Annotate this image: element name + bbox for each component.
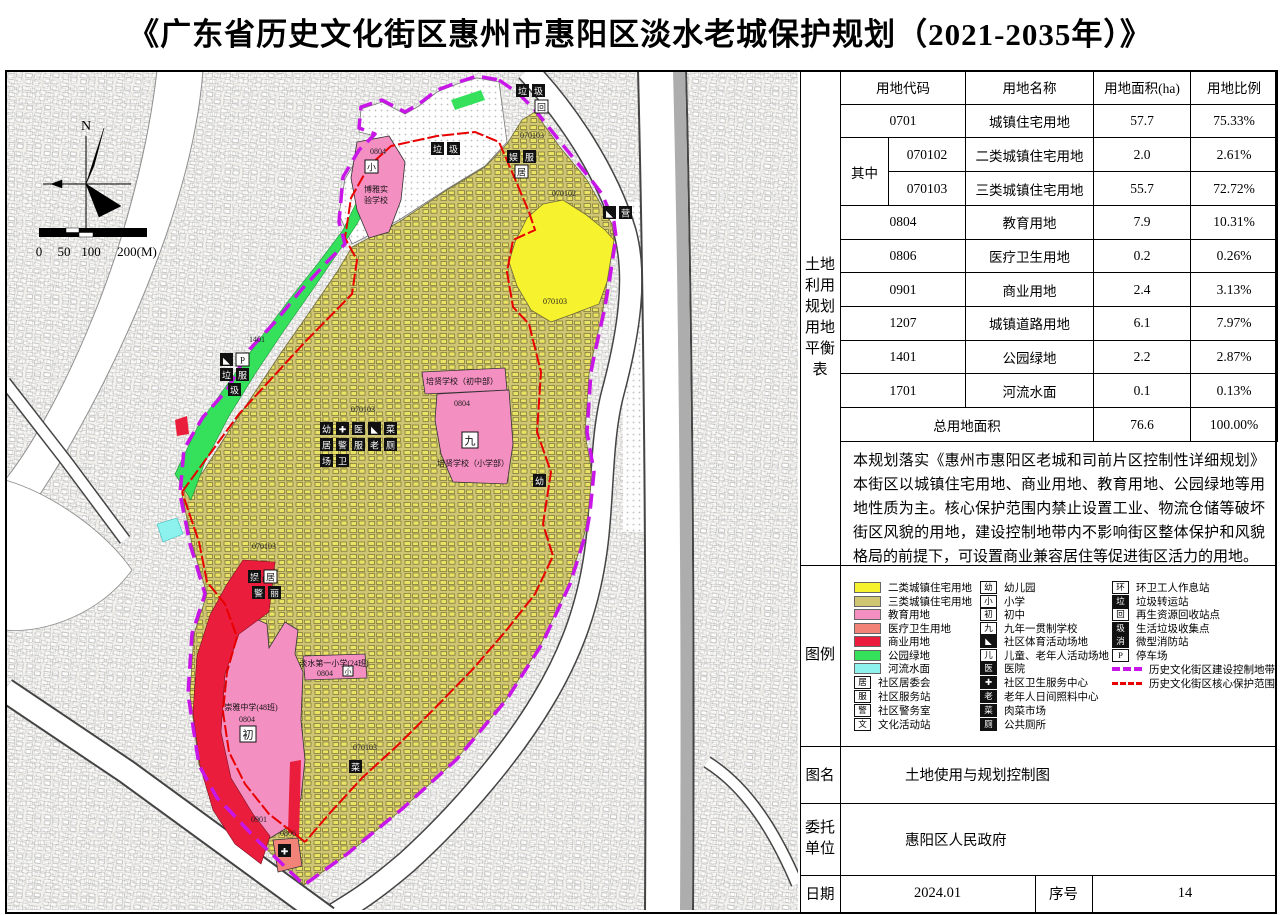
cell-code: 0806 [841, 239, 966, 273]
zone-code-label: 0804 [317, 669, 333, 678]
activity-ground-icon: 儿 [980, 649, 997, 662]
svg-text:圾: 圾 [230, 385, 239, 396]
service-station-icon: 服 [236, 368, 249, 381]
cell-pct: 75.33% [1191, 104, 1278, 138]
color-swatch [854, 636, 881, 647]
cell-area: 57.7 [1094, 104, 1191, 138]
committee-icon: 居 [320, 438, 333, 451]
table-row: 其中 070102 二类城镇住宅用地 2.0 2.61% [841, 138, 1278, 172]
svg-text:丽: 丽 [270, 589, 279, 599]
waste-collection-icon: 圾 [532, 84, 545, 97]
legend-item: 老老年人日间照料中心 [980, 690, 1099, 702]
svg-text:服: 服 [354, 441, 363, 451]
junior-school-icon: 初 [240, 726, 256, 742]
cell-pct: 7.97% [1191, 307, 1278, 341]
legend-item: ◣社区体育活动场地 [980, 635, 1088, 647]
client-label: 委托单位 [801, 803, 839, 875]
svg-text:垃: 垃 [518, 86, 527, 97]
legend-item: 圾生活垃圾收集点 [1112, 622, 1210, 634]
legend-label: 微型消防站 [1136, 634, 1189, 649]
legend-label: 幼儿园 [1004, 580, 1036, 595]
legend-label: 医院 [1004, 661, 1025, 676]
elder-care-icon: 老 [368, 438, 381, 451]
zone-code-label: 070102 [552, 189, 576, 198]
table-row: 0806 医疗卫生用地 0.2 0.26% [841, 239, 1278, 273]
culture-station-icon: 文 [854, 718, 871, 731]
color-swatch [854, 623, 881, 634]
legend-item: P停车场 [1112, 649, 1168, 661]
elder-care-icon: 老 [980, 690, 997, 703]
legend-item: ✚社区卫生服务中心 [980, 676, 1088, 688]
svg-text:居: 居 [266, 573, 275, 583]
kindergarten-icon: 幼 [533, 474, 546, 487]
cell-name: 公园绿地 [966, 340, 1094, 374]
legend-label: 停车场 [1136, 648, 1168, 663]
table-row: 0804 教育用地 7.9 10.31% [841, 205, 1278, 239]
svg-text:幼: 幼 [322, 424, 331, 435]
cell-code: 1207 [841, 307, 966, 341]
legend-label: 环卫工人作息站 [1136, 580, 1210, 595]
svg-text:卫: 卫 [338, 457, 347, 467]
legend-item: 医医院 [980, 662, 1025, 674]
legend-label: 文化活动站 [878, 717, 931, 732]
market-icon: 菜 [980, 704, 997, 717]
cell-name: 城镇道路用地 [966, 307, 1094, 341]
recycling-icon: 回 [535, 100, 548, 113]
zone-commercial-east [288, 760, 301, 838]
parking-icon: P [1112, 649, 1129, 662]
zone-code-label: 0806 [280, 829, 296, 838]
legend-item: 历史文化街区核心保护范围 [1112, 677, 1275, 689]
legend-item: 环环卫工人作息站 [1112, 581, 1210, 593]
kindergarten-icon: 幼 [320, 422, 333, 435]
date-value: 2024.01 [841, 875, 1034, 912]
waste-transfer-icon: 垃 [431, 142, 444, 155]
svg-text:场: 场 [322, 457, 331, 467]
waste-transfer-icon: 垃 [516, 84, 529, 97]
table-row: 0701 城镇住宅用地 57.7 75.33% [841, 104, 1278, 138]
col-header: 用地面积(ha) [1094, 71, 1191, 105]
svg-text:回: 回 [537, 103, 546, 113]
legend-label: 老年人日间照料中心 [1004, 689, 1099, 704]
nine-year-school-icon: 九 [980, 622, 997, 635]
cell-name: 商业用地 [966, 273, 1094, 307]
svg-text:营: 营 [621, 208, 630, 219]
zone-code-label: 070103 [520, 131, 544, 140]
svg-text:居: 居 [517, 168, 526, 178]
fire-station-icon: 消 [1112, 635, 1129, 648]
legend-label: 社区卫生服务中心 [1004, 675, 1088, 690]
cell-name: 城镇住宅用地 [966, 104, 1094, 138]
police-room-icon: 警 [854, 704, 871, 717]
health-center-icon: ✚ [980, 676, 997, 689]
zone-code-label: 070103 [351, 405, 375, 414]
table-row: 070103 三类城镇住宅用地 55.7 72.72% [841, 172, 1278, 206]
primary-school-icon: 小 [980, 595, 997, 608]
legend-item: 小小学 [980, 595, 1025, 607]
cell-name: 教育用地 [966, 205, 1094, 239]
recycling-icon: 回 [1112, 608, 1129, 621]
health-center-icon: ✚ [336, 422, 349, 435]
sanitation-icon: 卫 [336, 454, 349, 467]
north-label: N [81, 119, 91, 134]
police-room-icon: 警 [336, 438, 349, 451]
legend-item: 菜肉菜市场 [980, 704, 1046, 716]
waste-collection-icon: 圾 [1112, 622, 1129, 635]
school-name-label: 验学校 [364, 195, 388, 205]
service-station-icon: 服 [352, 438, 365, 451]
land-use-map: 垃 圾 回 垃 圾 娱 服 居 ◣ 营 ◣ P 垃 服 圾 幼 ✚ 医 ◣ 菜 … [7, 72, 798, 910]
sheet-title: 《广东省历史文化街区惠州市惠阳区淡水老城保护规划（2021-2035年）》 [0, 9, 1280, 54]
svg-text:圾: 圾 [534, 86, 543, 97]
cell-area: 2.0 [1094, 138, 1191, 172]
date-label: 日期 [801, 875, 839, 912]
cell-total-pct: 100.00% [1191, 408, 1278, 442]
legend-label: 再生资源回收站点 [1136, 607, 1220, 622]
svg-text:◣: ◣ [371, 425, 378, 435]
color-swatch [854, 609, 881, 620]
legend-item: 垃垃圾转运站 [1112, 595, 1189, 607]
waste-transfer-icon: 垃 [220, 368, 233, 381]
waste-collection-icon: 圾 [447, 142, 460, 155]
committee-icon: 居 [854, 676, 871, 689]
svg-text:居: 居 [322, 441, 331, 451]
land-balance-table: 用地代码 用地名称 用地面积(ha) 用地比例 0701 城镇住宅用地 57.7… [840, 70, 1278, 442]
table-row: 0901 商业用地 2.4 3.13% [841, 273, 1278, 307]
map-canvas: 垃 圾 回 垃 圾 娱 服 居 ◣ 营 ◣ P 垃 服 圾 幼 ✚ 医 ◣ 菜 … [7, 72, 798, 910]
cell-area: 6.1 [1094, 307, 1191, 341]
cell-code: 0701 [841, 104, 966, 138]
entertainment-icon: 娱 [507, 150, 520, 163]
cell-name: 河流水面 [966, 374, 1094, 408]
legend-label: 社区居委会 [878, 675, 931, 690]
legend-label: 二类城镇住宅用地 [888, 580, 972, 595]
table-row: 1401 公园绿地 2.2 2.87% [841, 340, 1278, 374]
kindergarten-icon: 幼 [980, 581, 997, 594]
svg-text:◣: ◣ [606, 209, 613, 219]
color-swatch [854, 582, 881, 593]
hospital-icon: 医 [352, 422, 365, 435]
svg-text:医: 医 [354, 425, 363, 435]
sports-ground-icon: ◣ [980, 635, 997, 648]
cell-pct: 10.31% [1191, 205, 1278, 239]
sports-ground-icon: ◣ [220, 353, 233, 366]
color-swatch [854, 650, 881, 661]
toilet-icon: 厕 [980, 718, 997, 731]
map-name-label: 图名 [801, 746, 839, 803]
legend-item: 消微型消防站 [1112, 635, 1189, 647]
legend-label: 社区体育活动场地 [1004, 634, 1088, 649]
cell-code: 0804 [841, 205, 966, 239]
col-header: 用地代码 [841, 71, 966, 105]
svg-text:警: 警 [254, 588, 263, 599]
sanitation-rest-icon: 环 [1112, 581, 1129, 594]
map-name-value: 土地使用与规划控制图 [905, 746, 1275, 803]
service-station-icon: 服 [854, 690, 871, 703]
market-icon: 菜 [384, 422, 397, 435]
table-row: 1701 河流水面 0.1 0.13% [841, 374, 1278, 408]
cell-group: 其中 [841, 138, 889, 205]
col-header: 用地名称 [966, 71, 1094, 105]
svg-text:厕: 厕 [386, 441, 395, 451]
legend-item: 医疗卫生用地 [854, 622, 951, 634]
committee-icon: 居 [264, 570, 277, 583]
svg-text:娱: 娱 [509, 152, 518, 163]
col-header: 用地比例 [1191, 71, 1278, 105]
market-icon: 菜 [349, 760, 362, 773]
svg-text:服: 服 [238, 371, 247, 381]
legend-item: 警社区警务室 [854, 704, 931, 716]
svg-text:垃: 垃 [433, 144, 442, 155]
svg-text:垃: 垃 [222, 370, 231, 381]
legend-item: 九九年一贯制学校 [980, 622, 1078, 634]
balance-table-side-label: 土地利用规划用地平衡表 [801, 70, 839, 565]
cell-code: 1701 [841, 374, 966, 408]
color-swatch [854, 663, 881, 674]
legend-label: 历史文化街区建设控制地带 [1149, 662, 1275, 677]
scale-tick: 200(M) [117, 244, 157, 259]
zone-code-label: 070103 [353, 743, 377, 752]
svg-text:小: 小 [345, 667, 352, 676]
hospital-icon: 医 [980, 662, 997, 675]
legend: 二类城镇住宅用地 三类城镇住宅用地 教育用地 医疗卫生用地 商业用地 公园绿地 … [840, 565, 1277, 746]
svg-text:小: 小 [367, 163, 376, 173]
waste-collection-icon: 圾 [228, 383, 241, 396]
zone-code-label: 0804 [370, 147, 386, 156]
core-protection-line-swatch [1112, 682, 1142, 685]
cell-pct: 2.61% [1191, 138, 1278, 172]
legend-item: 居社区居委会 [854, 676, 931, 688]
nine-year-school-icon: 九 [462, 432, 478, 448]
camp-icon: 营 [619, 206, 632, 219]
beauty-icon: 丽 [268, 586, 281, 599]
table-row: 1207 城镇道路用地 6.1 7.97% [841, 307, 1278, 341]
sports-ground-icon: ◣ [368, 422, 381, 435]
cell-code: 070102 [889, 138, 966, 172]
scale-tick: 0 [36, 244, 43, 259]
svg-text:菜: 菜 [351, 762, 360, 773]
svg-text:警: 警 [338, 440, 347, 451]
color-swatch [854, 596, 881, 607]
table-total-row: 总用地面积 76.6 100.00% [841, 408, 1278, 442]
legend-item: 文文化活动站 [854, 718, 931, 730]
zone-code-label: 1401 [249, 335, 265, 344]
junior-school-icon: 初 [980, 608, 997, 621]
legend-item: 公园绿地 [854, 649, 930, 661]
cell-pct: 3.13% [1191, 273, 1278, 307]
svg-text:老: 老 [370, 440, 379, 451]
zone-code-label: 070103 [252, 542, 276, 551]
svg-text:菜: 菜 [386, 424, 395, 435]
cell-area: 0.2 [1094, 239, 1191, 273]
table-header-row: 用地代码 用地名称 用地面积(ha) 用地比例 [841, 71, 1278, 105]
legend-item: 三类城镇住宅用地 [854, 595, 972, 607]
legend-item: 儿儿童、老年人活动场地 [980, 649, 1109, 661]
svg-text:✚: ✚ [339, 425, 347, 435]
legend-label: 河流水面 [888, 661, 930, 676]
svg-text:服: 服 [525, 153, 534, 163]
control-zone-line-swatch [1112, 667, 1142, 671]
legend-item: 服社区服务站 [854, 690, 931, 702]
cell-total-area: 76.6 [1094, 408, 1191, 442]
arterial-road [662, 72, 687, 910]
waste-transfer-icon: 垃 [1112, 595, 1129, 608]
cell-pct: 0.26% [1191, 239, 1278, 273]
legend-item: 教育用地 [854, 608, 930, 620]
plan-sheet: 《广东省历史文化街区惠州市惠阳区淡水老城保护规划（2021-2035年）》 [0, 0, 1280, 915]
toilet-icon: 厕 [384, 438, 397, 451]
legend-item: 商业用地 [854, 635, 930, 647]
scale-tick: 50 [58, 244, 71, 259]
cell-code: 0901 [841, 273, 966, 307]
cell-name: 二类城镇住宅用地 [966, 138, 1094, 172]
legend-item: 幼幼儿园 [980, 581, 1036, 593]
svg-text:◣: ◣ [223, 356, 230, 366]
police-room-icon: 警 [252, 586, 265, 599]
school-name-label: 培贤学校（初中部） [426, 376, 498, 386]
parking-icon: P [236, 353, 249, 366]
svg-text:初: 初 [243, 728, 254, 742]
cell-name: 医疗卫生用地 [966, 239, 1094, 273]
cell-pct: 2.87% [1191, 340, 1278, 374]
svg-text:✚: ✚ [281, 847, 289, 857]
school-name-label: 培贤学校（小学部） [437, 458, 509, 468]
zone-code-label: 0804 [454, 399, 470, 408]
primary-school-icon: 小 [365, 160, 378, 173]
zone-code-label: 0804 [239, 715, 255, 724]
cell-area: 7.9 [1094, 205, 1191, 239]
cell-area: 0.1 [1094, 374, 1191, 408]
legend-side-label: 图例 [801, 565, 839, 746]
health-center-icon: ✚ [278, 844, 291, 857]
legend-item: 历史文化街区建设控制地带 [1112, 663, 1275, 675]
legend-label: 教育用地 [888, 607, 930, 622]
svg-text:P: P [240, 356, 245, 366]
legend-item: 二类城镇住宅用地 [854, 581, 972, 593]
service-station-icon: 服 [523, 150, 536, 163]
svg-text:圾: 圾 [449, 144, 458, 155]
school-name-label: 博雅实 [364, 184, 388, 194]
cell-area: 2.2 [1094, 340, 1191, 374]
legend-item: 河流水面 [854, 662, 930, 674]
school-name-label: 崇雅中学(48班) [224, 702, 278, 712]
svg-text:九: 九 [465, 435, 476, 448]
cell-pct: 72.72% [1191, 172, 1278, 206]
svg-text:幼: 幼 [535, 476, 544, 487]
cell-area: 2.4 [1094, 273, 1191, 307]
cell-code: 070103 [889, 172, 966, 206]
activity-ground-icon: 场 [320, 454, 333, 467]
cell-name: 三类城镇住宅用地 [966, 172, 1094, 206]
legend-label: 历史文化街区核心保护范围 [1149, 676, 1275, 691]
legend-label: 社区服务站 [878, 689, 931, 704]
committee-icon: 居 [515, 165, 528, 178]
planning-notes: 本规划落实《惠州市惠阳区老城和司前片区控制性详细规划》本街区以城镇住宅用地、商业… [841, 441, 1277, 564]
serial-label: 序号 [1036, 875, 1091, 912]
client-value: 惠阳区人民政府 [905, 803, 1275, 875]
legend-label: 商业用地 [888, 634, 930, 649]
legend-item: 初初中 [980, 608, 1025, 620]
school-name-label: 淡水第一小学(24班) [299, 658, 369, 668]
serial-value: 14 [1093, 875, 1277, 912]
legend-label: 肉菜市场 [1004, 703, 1046, 718]
sports-ground-icon: ◣ [603, 206, 616, 219]
zone-code-label: 0901 [251, 815, 267, 824]
scale-tick: 100 [81, 244, 101, 259]
cell-total-label: 总用地面积 [841, 408, 1094, 442]
cell-area: 55.7 [1094, 172, 1191, 206]
legend-label: 社区警务室 [878, 703, 931, 718]
legend-item: 厕公共厕所 [980, 718, 1046, 730]
cell-code: 1401 [841, 340, 966, 374]
legend-item: 回再生资源回收站点 [1112, 608, 1220, 620]
zone-code-label: 0901 [249, 575, 265, 584]
zone-code-label: 070103 [543, 297, 567, 306]
cell-pct: 0.13% [1191, 374, 1278, 408]
legend-label: 公共厕所 [1004, 717, 1046, 732]
legend-label: 初中 [1004, 607, 1025, 622]
